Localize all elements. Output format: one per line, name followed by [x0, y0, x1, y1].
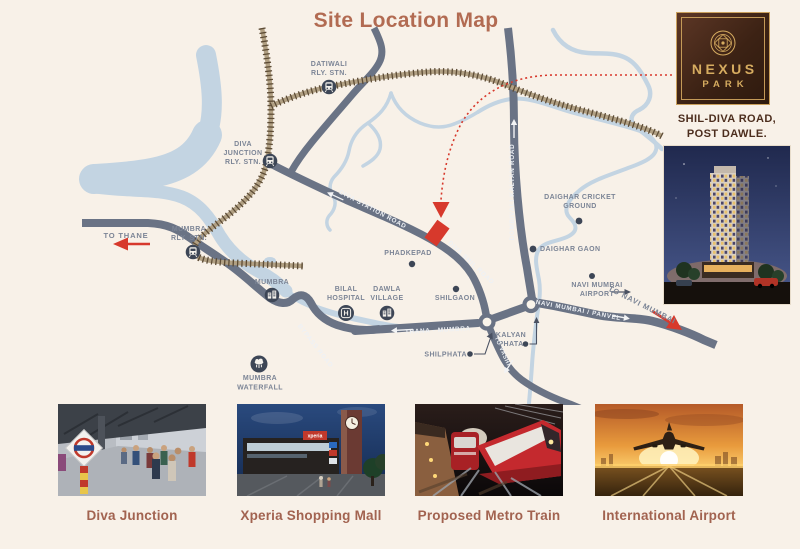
brand-name: NEXUS [688, 61, 757, 77]
runway [595, 466, 743, 496]
mall-sign: xperia [303, 431, 327, 440]
metro-train-photo [415, 404, 563, 496]
label-kalyan-1: KALYAN [496, 332, 526, 339]
label-bilal-1: BILAL [335, 286, 358, 293]
clock-tower [341, 410, 362, 476]
svg-text:xperia: xperia [308, 434, 323, 440]
road-shapes [82, 28, 716, 405]
label-shilgaon: SHILGAON [435, 295, 475, 302]
gallery-item-xperia-mall: xperia Xperia Shopping Mall [237, 404, 385, 523]
caption-xperia-mall: Xperia Shopping Mall [237, 508, 385, 523]
label-to-thane: TO THANE [103, 231, 148, 240]
label-mumbra-stn-1: MUMBRA [172, 226, 206, 233]
address-line-2: POST DAWLE. [660, 127, 794, 142]
site-location-page: Site Location Map [0, 0, 800, 549]
gallery-item-metro-train: Proposed Metro Train [415, 404, 563, 523]
label-cricket-1: DAIGHAR CRICKET [544, 194, 616, 201]
address-line-1: SHIL-DIVA ROAD, [660, 112, 794, 127]
caption-metro-train: Proposed Metro Train [415, 508, 563, 523]
label-waterfall-1: MUMBRA [243, 375, 277, 382]
label-cricket-2: GROUND [563, 203, 597, 210]
label-bilal-2: HOSPITAL [327, 295, 365, 302]
caption-diva-junction: Diva Junction [58, 508, 206, 523]
village-icon [380, 306, 395, 321]
label-diva-station-road: DIVA STATION ROAD [338, 189, 407, 230]
diva-junction-photo [58, 404, 206, 496]
label-daighar-gaon: DAIGHAR GAON [540, 246, 600, 253]
label-dombivali-road: DOMBIVALI KALYAN ROAD [509, 144, 516, 241]
brand-subname: PARK [697, 79, 748, 90]
label-mumbra-stn-2: RLY. STN. [171, 235, 207, 242]
label-datiwali-2: RLY. STN. [311, 70, 347, 77]
waterfall-icon [251, 356, 268, 373]
label-diva-2: JUNCTION [224, 150, 263, 157]
label-mumbra: MUMBRA [255, 279, 289, 286]
label-waterfall-2: WATERFALL [237, 385, 283, 392]
xperia-mall-photo: xperia [237, 404, 385, 496]
label-dawla-2: VILLAGE [370, 295, 403, 302]
train-icon [322, 80, 337, 95]
sign-pole [80, 466, 88, 494]
train-icon [186, 245, 201, 260]
label-bypass-road: BYPASS ROAD [296, 323, 334, 369]
gallery-item-diva-junction: Diva Junction [58, 404, 206, 523]
metro-train-rear [451, 432, 479, 470]
airport-photo [595, 404, 743, 496]
train-icon [263, 154, 278, 169]
label-panvel-road: NAVI MUMBAI / PANVEL [535, 299, 621, 322]
gallery-item-airport: International Airport [595, 404, 743, 523]
caption-airport: International Airport [595, 508, 743, 523]
nexus-park-logo: NEXUS PARK [676, 12, 770, 105]
village-icon [265, 288, 280, 303]
hospital-icon: H [338, 305, 354, 321]
label-diva-1: DIVA [234, 141, 252, 148]
logo-rosette-icon [708, 28, 738, 58]
tower-photo [664, 146, 790, 304]
label-shilphata: SHILPHATA [424, 352, 467, 359]
label-dawla-1: DAWLA [373, 286, 401, 293]
label-phadkepad: PHADKEPAD [384, 250, 431, 257]
railway-lines [193, 28, 662, 266]
label-datiwali-1: DATIWALI [311, 61, 348, 68]
label-diva-3: RLY. STN. [225, 159, 261, 166]
hospital-glyph: H [343, 311, 348, 318]
brand-address: SHIL-DIVA ROAD, POST DAWLE. [660, 112, 794, 143]
